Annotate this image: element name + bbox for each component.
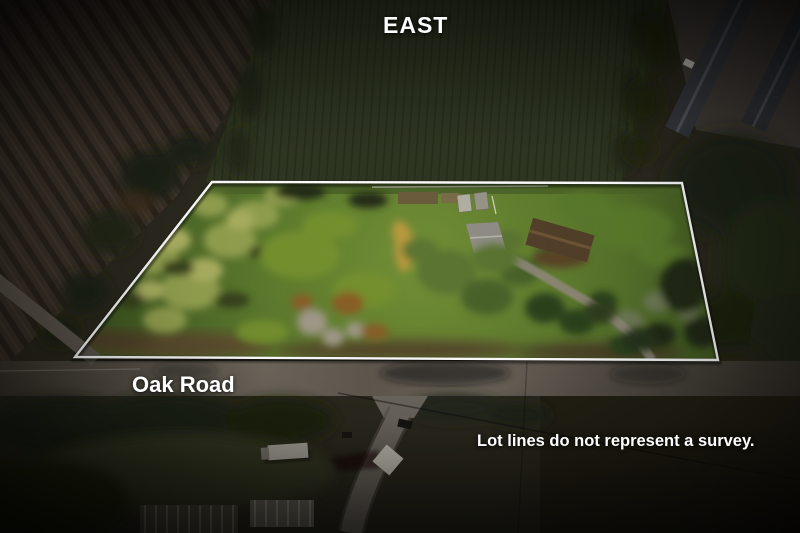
vignette-overlay [0,0,800,533]
survey-disclaimer: Lot lines do not represent a survey. [477,432,755,450]
road-name-label: Oak Road [132,373,235,397]
direction-label: EAST [383,13,448,38]
scene-svg [0,0,800,533]
aerial-property-photo: EAST Oak Road Lot lines do not represent… [0,0,800,533]
